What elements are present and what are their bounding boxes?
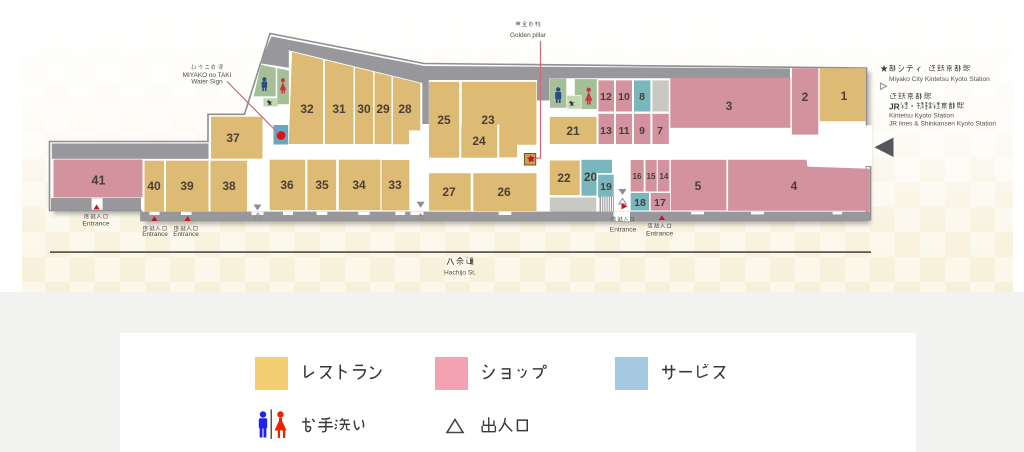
svg-text:19: 19 xyxy=(600,181,612,193)
svg-text:12: 12 xyxy=(600,91,612,103)
svg-text:Kintetsu Kyoto Station: Kintetsu Kyoto Station xyxy=(889,113,954,120)
svg-text:13: 13 xyxy=(600,125,612,137)
svg-text:JR: JR xyxy=(889,102,900,112)
svg-text:1: 1 xyxy=(841,89,848,103)
svg-text:20: 20 xyxy=(584,170,598,184)
svg-text:40: 40 xyxy=(147,179,161,193)
svg-text:15: 15 xyxy=(647,172,656,181)
svg-text:35: 35 xyxy=(315,178,329,192)
svg-text:33: 33 xyxy=(388,178,402,192)
svg-text:3: 3 xyxy=(726,99,733,113)
svg-text:36: 36 xyxy=(280,178,294,192)
svg-text:18: 18 xyxy=(634,197,646,209)
svg-text:29: 29 xyxy=(376,102,390,116)
svg-text:Entrance: Entrance xyxy=(646,231,673,238)
svg-text:4: 4 xyxy=(791,179,798,193)
svg-text:34: 34 xyxy=(352,178,366,192)
svg-text:10: 10 xyxy=(618,91,630,103)
svg-text:32: 32 xyxy=(300,102,314,116)
svg-text:JR lines & Shinkansen Kyoto St: JR lines & Shinkansen Kyoto Station xyxy=(889,121,996,128)
svg-text:38: 38 xyxy=(222,179,236,193)
svg-text:22: 22 xyxy=(557,171,571,185)
svg-text:25: 25 xyxy=(437,113,451,127)
svg-text:16: 16 xyxy=(633,172,642,181)
svg-text:26: 26 xyxy=(497,185,511,199)
svg-text:27: 27 xyxy=(442,185,456,199)
svg-text:24: 24 xyxy=(472,134,486,148)
svg-text:5: 5 xyxy=(695,179,702,193)
svg-text:23: 23 xyxy=(481,113,495,127)
svg-text:Entrance: Entrance xyxy=(82,221,109,228)
svg-text:Water Sign: Water Sign xyxy=(191,79,223,86)
svg-text:2: 2 xyxy=(802,90,809,104)
svg-text:17: 17 xyxy=(654,197,666,209)
svg-text:Entrance: Entrance xyxy=(142,231,168,238)
svg-text:Hachijo St.: Hachijo St. xyxy=(444,270,476,277)
svg-text:21: 21 xyxy=(566,124,580,138)
svg-text:9: 9 xyxy=(639,125,645,137)
svg-text:Golden pillar: Golden pillar xyxy=(510,32,547,39)
svg-text:8: 8 xyxy=(639,91,645,103)
svg-text:7: 7 xyxy=(657,125,663,137)
svg-text:14: 14 xyxy=(660,172,669,181)
svg-text:39: 39 xyxy=(180,179,194,193)
svg-text:28: 28 xyxy=(398,102,412,116)
svg-text:41: 41 xyxy=(92,174,106,188)
svg-text:37: 37 xyxy=(226,131,240,145)
svg-text:31: 31 xyxy=(332,102,346,116)
svg-text:Entrance: Entrance xyxy=(173,231,199,238)
svg-text:30: 30 xyxy=(357,102,371,116)
svg-text:Entrance: Entrance xyxy=(610,227,637,234)
svg-text:11: 11 xyxy=(618,125,629,137)
svg-text:Miyako City Kintetsu Kyoto Sta: Miyako City Kintetsu Kyoto Station xyxy=(889,76,990,83)
